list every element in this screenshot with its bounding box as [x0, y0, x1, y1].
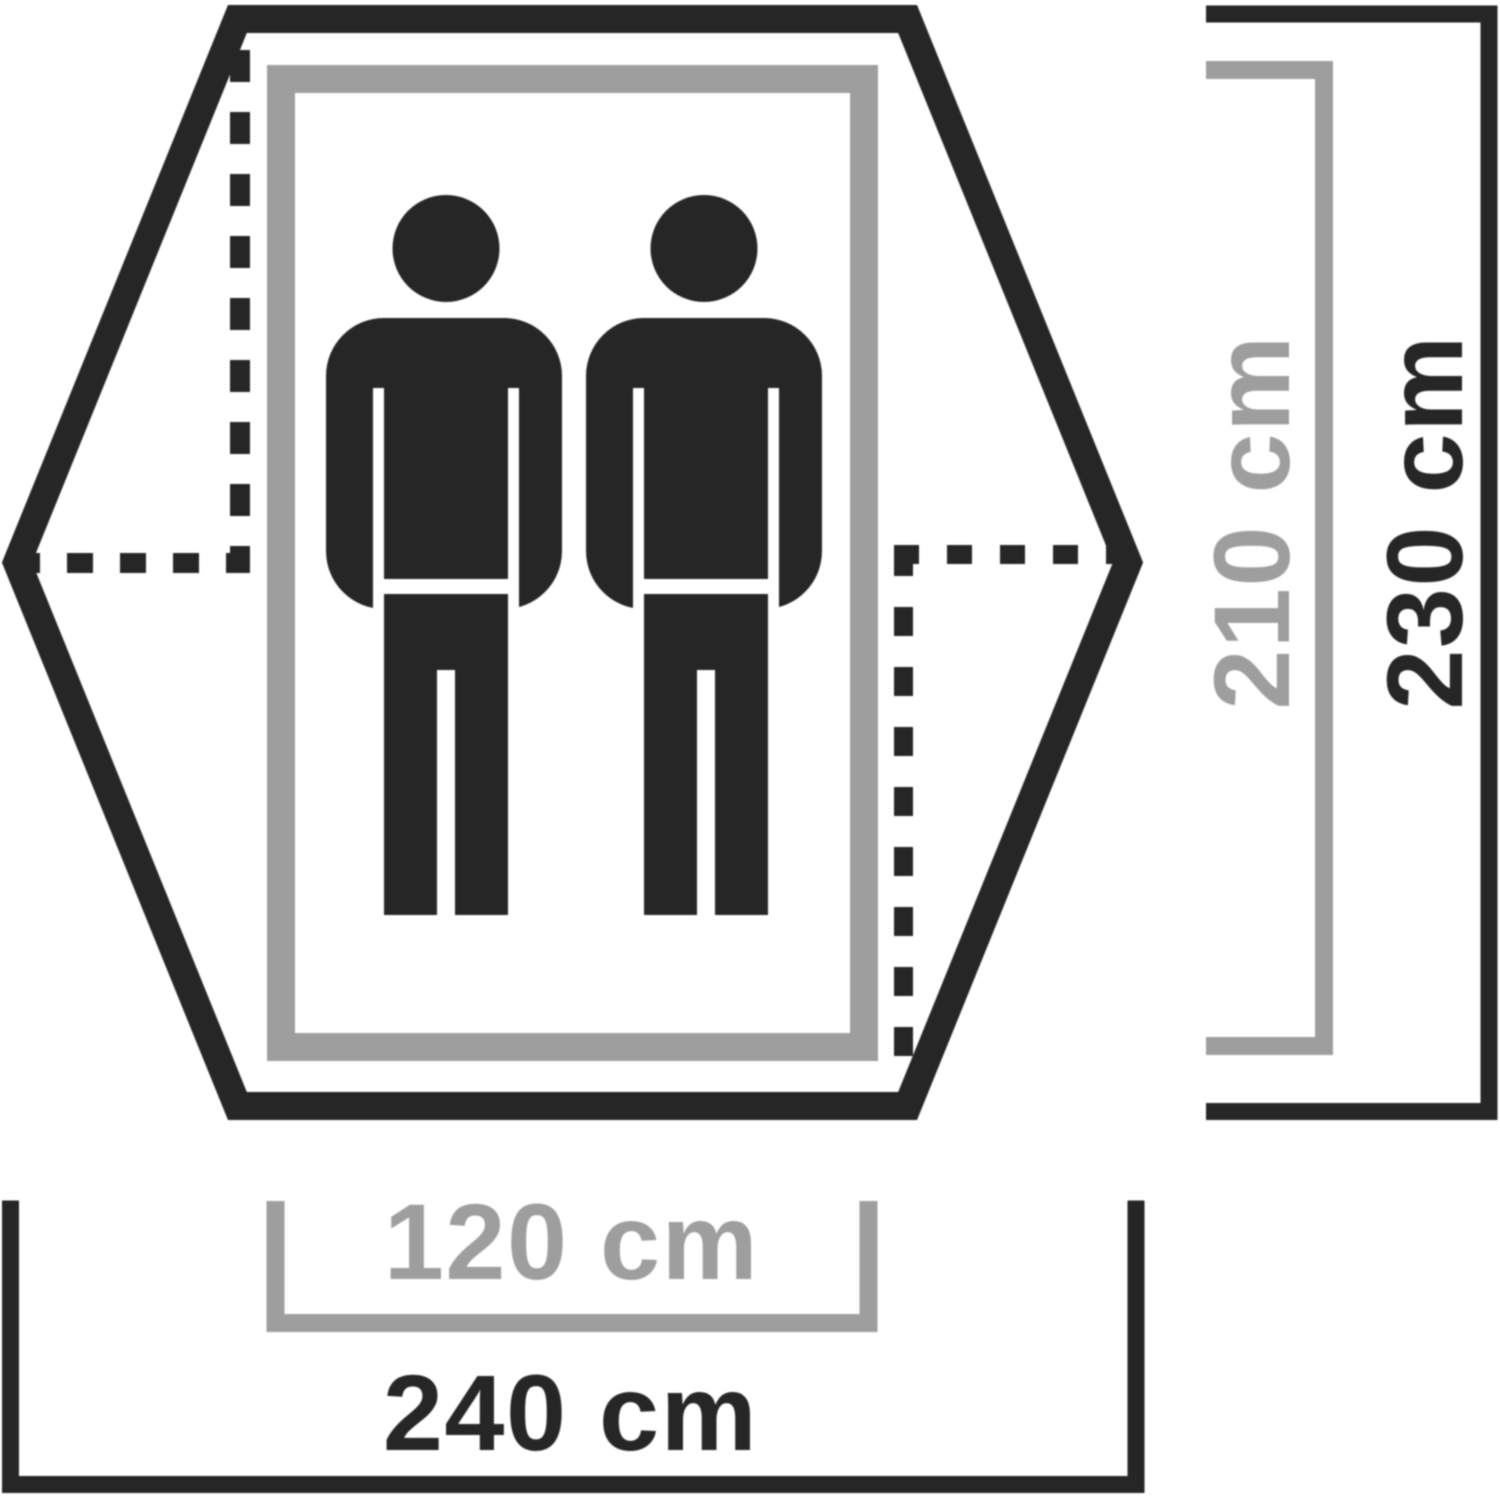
svg-text:120 cm: 120 cm: [384, 1181, 759, 1302]
svg-text:230 cm: 230 cm: [1364, 334, 1485, 709]
svg-text:240 cm: 240 cm: [383, 1352, 758, 1473]
svg-text:210 cm: 210 cm: [1191, 334, 1312, 709]
